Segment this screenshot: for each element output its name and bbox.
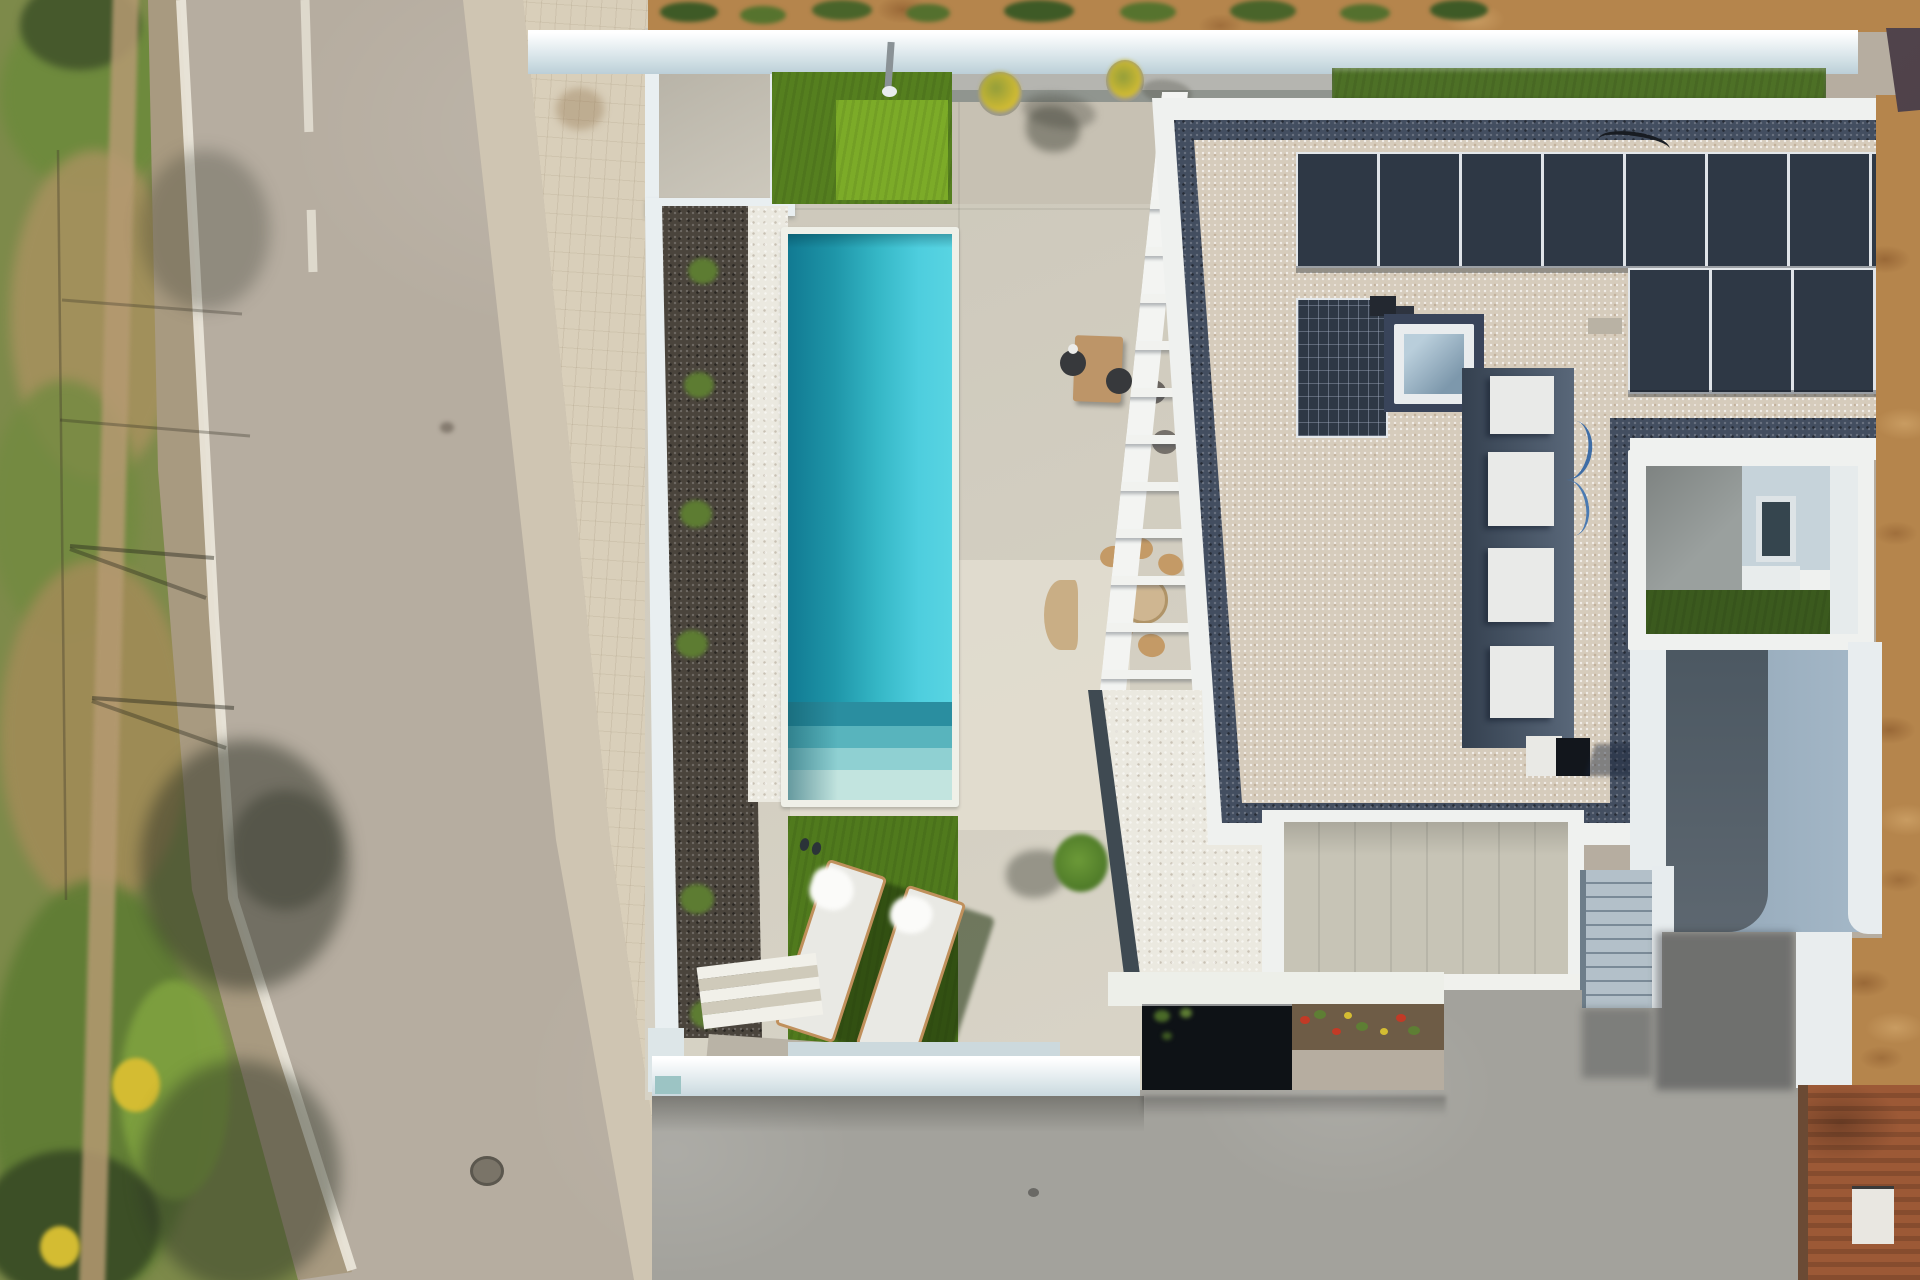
flower-pot-plant (1108, 60, 1142, 98)
skylight-glass (1404, 334, 1464, 394)
top-shrub (740, 6, 786, 24)
tree-shadow (140, 1060, 340, 1280)
aerial-photo-villa (0, 0, 1920, 1280)
solar-panel-row-top (1296, 152, 1920, 268)
rust-zone (1806, 1085, 1920, 1280)
top-shrub (1120, 2, 1176, 22)
boundary-wall-right-lower (1796, 932, 1852, 1088)
flower-red (1396, 1014, 1406, 1022)
dirt-strip-right (1876, 95, 1920, 643)
driveway-wall-shadow-band (652, 1096, 1144, 1132)
driveway-wall-shadow-right (1656, 932, 1794, 1090)
tree-shadow (140, 150, 270, 310)
lower-boundary-wall (652, 1056, 1140, 1096)
road-stain (440, 422, 454, 433)
flower-red (1300, 1016, 1310, 1024)
gravel-shrub (676, 630, 708, 658)
outdoor-shower-head (882, 86, 897, 97)
gravel-shrub (688, 258, 718, 284)
stairs-edge (1580, 870, 1586, 1008)
yellow-flower-bush (40, 1226, 80, 1268)
solar-panel-row-mid (1628, 268, 1884, 394)
ac-unit (1488, 452, 1554, 526)
roof-pad (1588, 318, 1622, 334)
entrance-pad (658, 74, 774, 206)
top-shrub (812, 0, 872, 20)
gutter-dirt-smudge (556, 88, 604, 130)
planter-plant (1180, 1008, 1192, 1018)
courtyard-step (1742, 566, 1800, 592)
top-shrub (1004, 0, 1074, 22)
ac-unit (1490, 646, 1554, 718)
top-grass-bright-square (836, 100, 948, 200)
gravel-shrub (684, 372, 714, 398)
utility-box (1852, 1186, 1894, 1244)
tree-shadow (230, 790, 340, 910)
driveway-stain (1028, 1188, 1039, 1197)
tree-shadow-on-deck (1026, 106, 1080, 152)
top-shrub (1430, 0, 1488, 20)
flower-red (1332, 1028, 1341, 1035)
closed-parasol (1044, 580, 1078, 650)
boundary-wall-right-upper (1848, 642, 1882, 934)
rust-zone-edge (1798, 1085, 1808, 1280)
flower-yellow (1344, 1012, 1352, 1019)
top-shrub (1230, 0, 1296, 22)
solar-row-shadow (1628, 390, 1880, 397)
entrance-wall-left (645, 74, 659, 206)
dining-chair-dark (1106, 368, 1132, 394)
driveway-stair-shadow (1582, 1008, 1652, 1078)
planter-plant (1154, 1010, 1170, 1022)
chair-cushion (1068, 344, 1078, 354)
terrace-dark-path (1666, 650, 1768, 932)
top-shrub (660, 2, 718, 22)
courtyard-right-wall (1830, 466, 1858, 634)
flower-green (1356, 1022, 1368, 1031)
flower-green (1314, 1010, 1326, 1019)
courtyard-window-glass (1762, 502, 1790, 556)
top-shrub (1340, 4, 1390, 22)
flower-pot-plant (980, 72, 1020, 112)
pool-edge-shadow (788, 234, 952, 248)
top-shrub (906, 4, 950, 22)
lower-wall-teal-sliver (655, 1076, 681, 1094)
solar-panel-single (1296, 298, 1388, 438)
yellow-flower-bush (112, 1058, 160, 1112)
ac-unit (1488, 548, 1554, 622)
manhole-cover (470, 1156, 504, 1186)
deck-tree (1054, 834, 1108, 892)
deck-seam (790, 208, 1156, 210)
planter-plant (1162, 1032, 1172, 1040)
ac-unit (1490, 376, 1554, 434)
gravel-shrub (680, 884, 714, 914)
chimney-dark-top (1556, 738, 1590, 776)
flower-green (1408, 1026, 1420, 1035)
dirt-strip-right (1850, 938, 1920, 1088)
dirt-strip-right (1882, 640, 1920, 940)
garage-door (1284, 822, 1568, 974)
driveway-planter-shadow (1142, 1096, 1446, 1116)
flower-yellow (1380, 1028, 1388, 1035)
courtyard-grass (1646, 590, 1830, 634)
pool-step-left-shade (788, 702, 838, 800)
inverter-box (1370, 296, 1396, 316)
exterior-stairs (1580, 870, 1658, 1008)
gravel-shrub (680, 500, 712, 528)
planter-wall-band (1108, 972, 1444, 1006)
